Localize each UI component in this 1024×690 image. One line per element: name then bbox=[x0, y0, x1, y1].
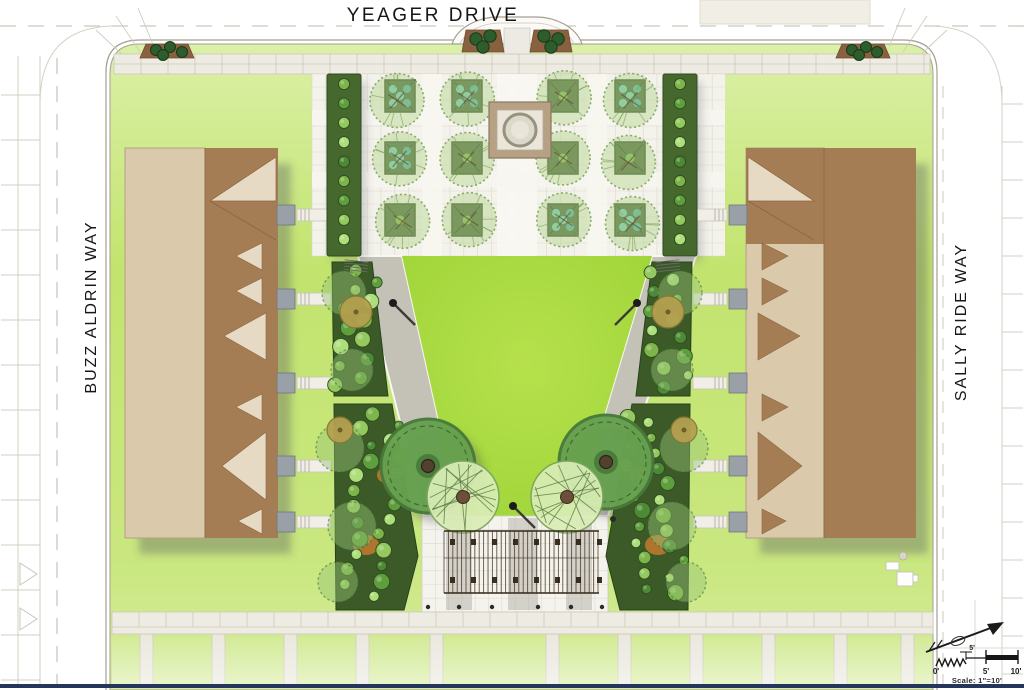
trellis-beam-post bbox=[450, 577, 455, 583]
shrub bbox=[674, 331, 686, 343]
shrub bbox=[674, 117, 685, 128]
trunk-dot bbox=[682, 428, 687, 433]
shrub-highlight bbox=[368, 443, 371, 446]
trellis-beam-post bbox=[534, 577, 539, 583]
shrub bbox=[647, 325, 658, 336]
tree-canopy bbox=[328, 502, 376, 550]
shrub-highlight bbox=[350, 487, 354, 491]
shrub-highlight bbox=[676, 80, 680, 84]
shrub bbox=[338, 78, 349, 89]
bollard bbox=[457, 605, 461, 609]
shrub bbox=[369, 591, 379, 601]
shrub bbox=[674, 175, 685, 186]
trellis-beam-post bbox=[534, 539, 539, 545]
shrub-highlight bbox=[633, 540, 636, 543]
shrub-highlight bbox=[340, 100, 344, 104]
evergreen-shrub bbox=[177, 47, 188, 58]
scale-tick-10: 10' bbox=[1011, 667, 1022, 676]
bollard bbox=[490, 605, 494, 609]
utility-vault bbox=[899, 552, 907, 560]
shrub-highlight bbox=[351, 470, 356, 475]
fountain bbox=[489, 102, 551, 158]
shrub-highlight bbox=[368, 409, 373, 414]
entry-walk bbox=[297, 377, 331, 389]
shrub bbox=[660, 476, 675, 491]
entry-stoop bbox=[277, 289, 295, 309]
trellis-beam-post bbox=[513, 577, 518, 583]
shrub-highlight bbox=[340, 197, 344, 201]
shrub-highlight bbox=[643, 586, 646, 589]
tree-canopy bbox=[666, 562, 706, 602]
entry-stoop bbox=[729, 456, 747, 476]
light-pole bbox=[389, 299, 397, 307]
tree-canopy bbox=[318, 562, 358, 602]
bollard bbox=[536, 605, 540, 609]
shrub bbox=[338, 156, 349, 167]
frond bbox=[468, 112, 469, 125]
sidewalk-band bbox=[112, 612, 933, 634]
shrub-highlight bbox=[676, 333, 680, 337]
shrub bbox=[674, 156, 685, 167]
entry-stoop bbox=[277, 456, 295, 476]
entry-walk bbox=[297, 516, 331, 528]
bollard bbox=[600, 605, 604, 609]
shrub bbox=[348, 485, 360, 497]
shrub bbox=[674, 78, 685, 89]
trellis-beam-post bbox=[597, 539, 602, 545]
street-label-buzz-aldrin-way: BUZZ ALDRIN WAY bbox=[83, 220, 100, 393]
street-label-sally-ride-way: SALLY RIDE WAY bbox=[953, 243, 970, 401]
shrub-highlight bbox=[676, 100, 680, 104]
shrub bbox=[674, 195, 685, 206]
shrub bbox=[674, 98, 685, 109]
trellis-beam-post bbox=[492, 539, 497, 545]
shrub-highlight bbox=[656, 496, 660, 500]
scale-tick-5: 5' bbox=[983, 667, 989, 676]
scale-bar-solid bbox=[986, 655, 1018, 660]
scale-caption: Scale: 1"=10' bbox=[952, 676, 1002, 685]
shrub-highlight bbox=[340, 158, 344, 162]
bollard bbox=[610, 516, 616, 522]
evergreen-shrub bbox=[477, 41, 489, 53]
entrance-planting bbox=[462, 28, 572, 54]
entry-walk bbox=[297, 209, 331, 221]
shrub-highlight bbox=[649, 327, 653, 331]
shrub bbox=[338, 175, 349, 186]
shrub bbox=[376, 542, 392, 558]
shrub-highlight bbox=[676, 177, 680, 181]
shrub-highlight bbox=[676, 139, 680, 143]
shrub bbox=[644, 266, 657, 279]
trunk bbox=[600, 456, 613, 469]
trellis-beam-post bbox=[555, 539, 560, 545]
entry-walk bbox=[693, 209, 727, 221]
shrub-highlight bbox=[676, 216, 680, 220]
shrub-highlight bbox=[641, 570, 645, 574]
entry-stoop bbox=[277, 205, 295, 225]
entry-walk bbox=[693, 377, 727, 389]
shrub bbox=[355, 331, 371, 347]
shrub-highlight bbox=[335, 341, 341, 347]
shrub-highlight bbox=[340, 236, 344, 240]
bottom-sidewalk bbox=[112, 612, 933, 686]
walk-stubs bbox=[112, 634, 933, 686]
trellis-beam-post bbox=[576, 577, 581, 583]
evergreen-shrub bbox=[854, 50, 865, 61]
shrub bbox=[674, 137, 685, 148]
entry-stoop bbox=[277, 373, 295, 393]
shrub-highlight bbox=[637, 505, 643, 511]
shrub bbox=[338, 98, 349, 109]
tree-canopy bbox=[651, 349, 693, 391]
trunk-dot bbox=[354, 310, 359, 315]
site-plan-canvas: 0' 5' 10' 5' Scale: 1"=10' YEAGER DRIVE … bbox=[0, 0, 1024, 690]
shrub-highlight bbox=[340, 216, 344, 220]
shrub-highlight bbox=[340, 177, 344, 181]
lawn-fade bbox=[112, 634, 933, 686]
evergreen-shrub bbox=[484, 30, 496, 42]
shrub bbox=[638, 551, 651, 564]
top-sidewalk bbox=[114, 54, 930, 74]
shrub-highlight bbox=[654, 464, 658, 468]
evergreen-shrub bbox=[158, 50, 169, 61]
trunk bbox=[422, 460, 435, 473]
building-left-roof-flat bbox=[125, 148, 205, 538]
utility-box bbox=[886, 562, 899, 570]
shrub bbox=[365, 407, 379, 421]
shrub bbox=[674, 234, 685, 245]
building-right-roof-main bbox=[824, 148, 916, 538]
shrub-highlight bbox=[378, 562, 382, 566]
trellis-beam-post bbox=[471, 539, 476, 545]
shrub-highlight bbox=[676, 158, 680, 162]
evergreen-shrub bbox=[872, 47, 883, 58]
shrub bbox=[363, 453, 379, 469]
trunk bbox=[457, 491, 470, 504]
shrub-highlight bbox=[340, 80, 344, 84]
shrub-highlight bbox=[355, 423, 361, 429]
shrub-highlight bbox=[353, 551, 357, 555]
shrub bbox=[634, 522, 644, 532]
entry-stoop bbox=[729, 373, 747, 393]
shrub bbox=[384, 514, 396, 526]
scale-segment-label: 5' bbox=[969, 645, 975, 652]
shrub-highlight bbox=[646, 268, 651, 273]
trellis-beam-post bbox=[450, 539, 455, 545]
evergreen-shrub bbox=[538, 30, 550, 42]
evergreen-shrub bbox=[545, 41, 557, 53]
tree-canopy bbox=[648, 502, 696, 550]
shrub bbox=[639, 568, 650, 579]
shrub bbox=[634, 502, 650, 518]
shrub-highlight bbox=[650, 288, 654, 292]
shrub-highlight bbox=[645, 419, 649, 423]
site-plan-drawing: 0' 5' 10' 5' Scale: 1"=10' YEAGER DRIVE … bbox=[0, 0, 1024, 690]
trunk bbox=[561, 491, 574, 504]
shrub-highlight bbox=[681, 557, 684, 560]
shrub bbox=[643, 417, 653, 427]
shrub-highlight bbox=[396, 423, 399, 426]
shrub bbox=[338, 234, 349, 245]
light-pole bbox=[509, 502, 517, 510]
shrub bbox=[338, 214, 349, 225]
shrub bbox=[674, 214, 685, 225]
shrub bbox=[642, 584, 652, 594]
shrub-highlight bbox=[340, 139, 344, 143]
shrub-highlight bbox=[379, 545, 384, 550]
shrub-highlight bbox=[648, 435, 651, 438]
shrub-highlight bbox=[386, 516, 390, 520]
entrance-walk bbox=[504, 28, 530, 54]
bollard bbox=[569, 605, 573, 609]
plaza-center-walk bbox=[497, 74, 537, 256]
shrub-highlight bbox=[640, 553, 644, 557]
trunk-dot bbox=[338, 428, 343, 433]
shrub-highlight bbox=[647, 345, 652, 350]
light-pole bbox=[633, 299, 641, 307]
shrub-highlight bbox=[663, 478, 668, 483]
entry-stoop bbox=[729, 205, 747, 225]
entry-walk bbox=[693, 516, 727, 528]
entry-stoop bbox=[729, 512, 747, 532]
shrub-highlight bbox=[365, 456, 371, 462]
trellis-beam-post bbox=[576, 539, 581, 545]
shrub bbox=[367, 441, 376, 450]
shrub-highlight bbox=[676, 119, 680, 123]
shrub-highlight bbox=[676, 236, 680, 240]
utility-tab bbox=[913, 575, 918, 582]
shrub-highlight bbox=[646, 307, 651, 312]
tree-canopy bbox=[331, 349, 373, 391]
shrub bbox=[338, 137, 349, 148]
shrub-highlight bbox=[357, 334, 363, 340]
street-label-yeager-drive: YEAGER DRIVE bbox=[347, 5, 520, 26]
entry-stoop bbox=[277, 512, 295, 532]
shrub-highlight bbox=[373, 279, 377, 283]
trellis-beam-post bbox=[513, 539, 518, 545]
sheet-border-line bbox=[0, 684, 1024, 688]
shrub-highlight bbox=[636, 523, 639, 526]
adjacent-building bbox=[700, 0, 870, 24]
shrub-highlight bbox=[371, 593, 375, 597]
shrub bbox=[371, 277, 382, 288]
trellis-beam-post bbox=[555, 577, 560, 583]
shrub bbox=[338, 117, 349, 128]
bollard bbox=[426, 605, 430, 609]
trunk-dot bbox=[666, 310, 671, 315]
trellis-beam-post bbox=[597, 577, 602, 583]
shrub bbox=[377, 561, 387, 571]
trellis-beam-post bbox=[492, 577, 497, 583]
fountain-center bbox=[511, 121, 529, 139]
utility-transformer bbox=[897, 572, 913, 586]
shrub-highlight bbox=[340, 119, 344, 123]
trellis-beam-post bbox=[471, 577, 476, 583]
shrub bbox=[338, 195, 349, 206]
shrub-highlight bbox=[376, 576, 382, 582]
shrub bbox=[374, 573, 390, 589]
shrub-highlight bbox=[676, 197, 680, 201]
entry-stoop bbox=[729, 289, 747, 309]
shrub bbox=[631, 538, 641, 548]
scale-tick-0: 0' bbox=[933, 667, 939, 676]
